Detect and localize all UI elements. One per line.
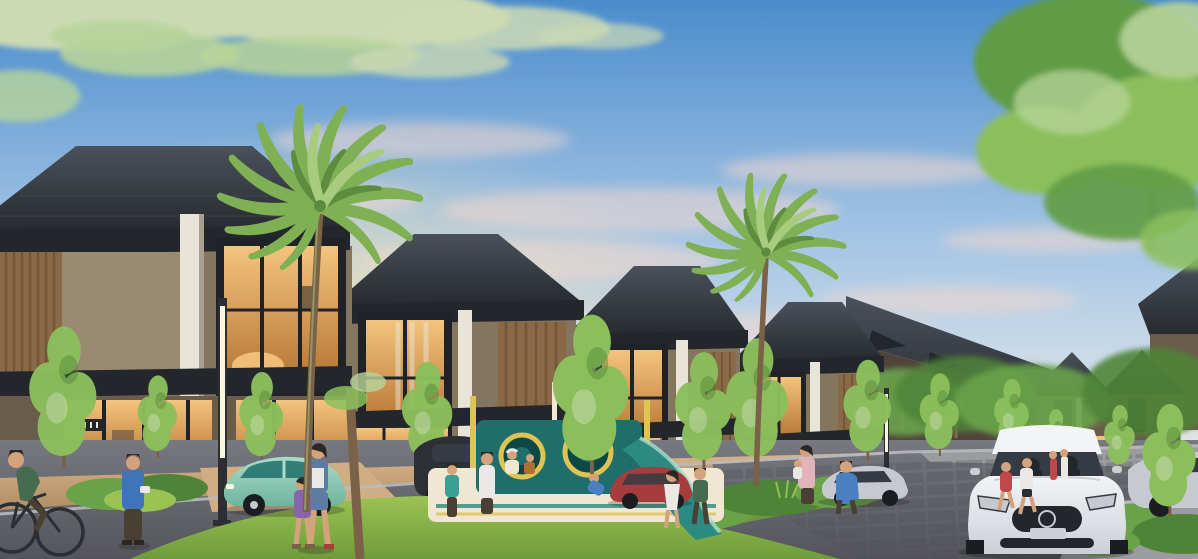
headlight — [226, 484, 234, 489]
shorts — [310, 492, 328, 510]
toddler — [793, 467, 802, 479]
toddler-head — [794, 460, 802, 468]
roof — [992, 425, 1102, 454]
mirror — [1112, 466, 1122, 473]
architectural-rendering: Architectural rendering of a receding ro… — [0, 0, 1198, 559]
trousers — [124, 509, 142, 541]
plate — [1030, 528, 1066, 539]
post — [470, 396, 476, 472]
intake — [1000, 538, 1094, 548]
top — [312, 468, 324, 488]
phone — [140, 486, 150, 493]
mirror — [970, 468, 980, 475]
render-canvas: Architectural rendering of a receding ro… — [0, 0, 1198, 559]
